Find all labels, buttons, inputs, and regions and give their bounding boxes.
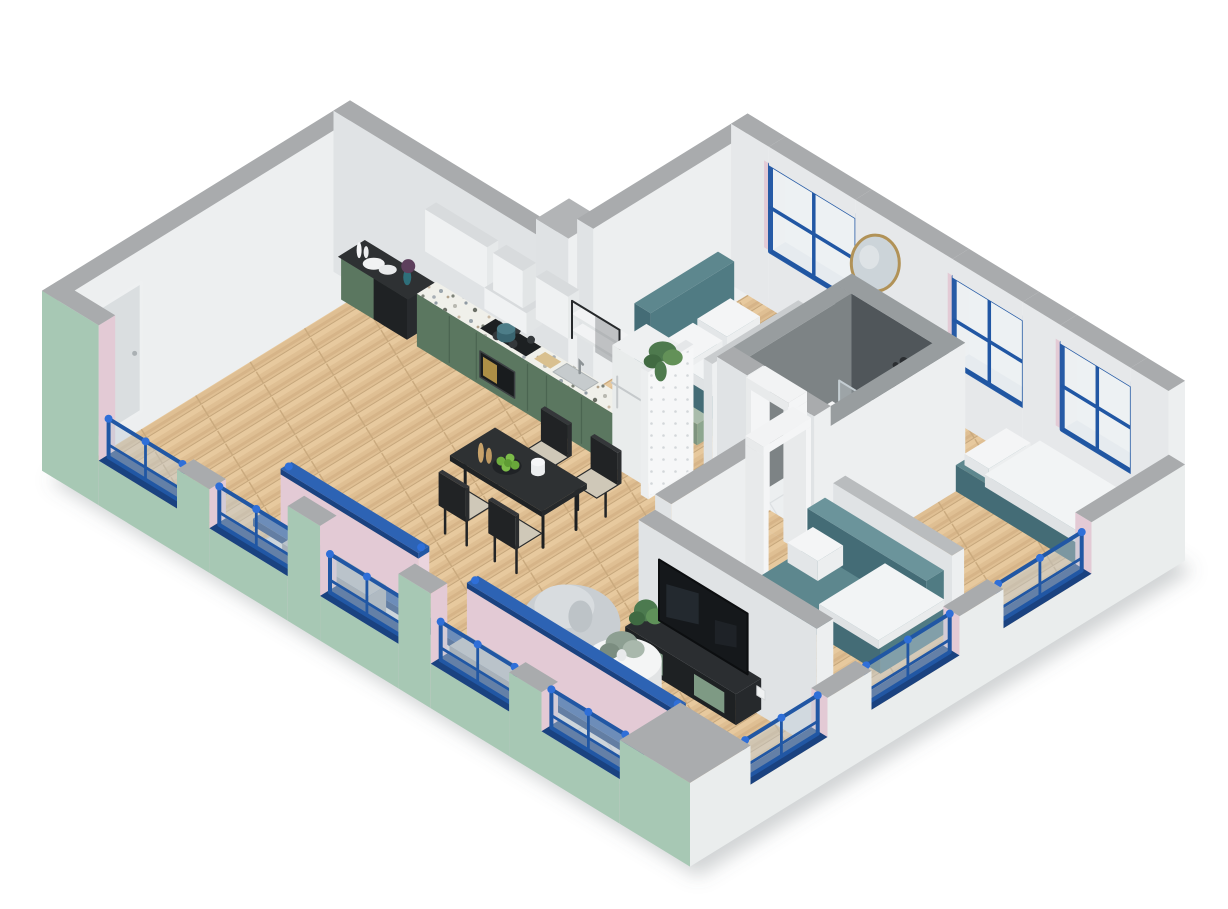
b2-door-jamb-1 [745, 442, 768, 585]
page: { "page": { "type": "isometric-3d-floor-… [0, 0, 1228, 909]
table-jar [531, 458, 545, 476]
floor-plan-svg [0, 0, 1228, 909]
floor-plan-stage [0, 0, 1228, 909]
cooking-pot [497, 323, 515, 342]
